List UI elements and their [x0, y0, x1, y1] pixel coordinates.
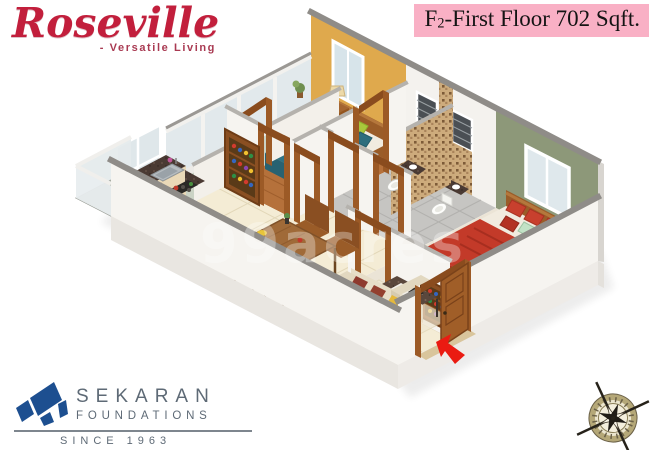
brand-name: Roseville — [12, 2, 222, 45]
sekaran-logo-icon — [14, 374, 68, 426]
developer-name: SEKARAN — [76, 386, 216, 408]
compass-rose-icon: N — [571, 382, 652, 450]
door-knob — [443, 311, 447, 315]
developer-type: FOUNDATIONS — [76, 410, 216, 422]
plan-label-text: -First Floor 702 Sqft. — [444, 6, 640, 31]
developer-since: SINCE 1963 — [60, 435, 252, 447]
plan-label: F2-First Floor 702 Sqft. — [414, 4, 649, 37]
kitchen-item — [168, 158, 173, 163]
watermark: 99acres — [200, 212, 467, 275]
divider — [14, 430, 252, 432]
floorplan-page: { "brand": { "name": "Roseville", "tagli… — [0, 0, 652, 450]
plan-label-prefix: F — [425, 6, 438, 31]
developer-logo-block: SEKARAN FOUNDATIONS SINCE 1963 — [14, 374, 252, 447]
brand-logo: Roseville - Versatile Living — [12, 2, 222, 54]
